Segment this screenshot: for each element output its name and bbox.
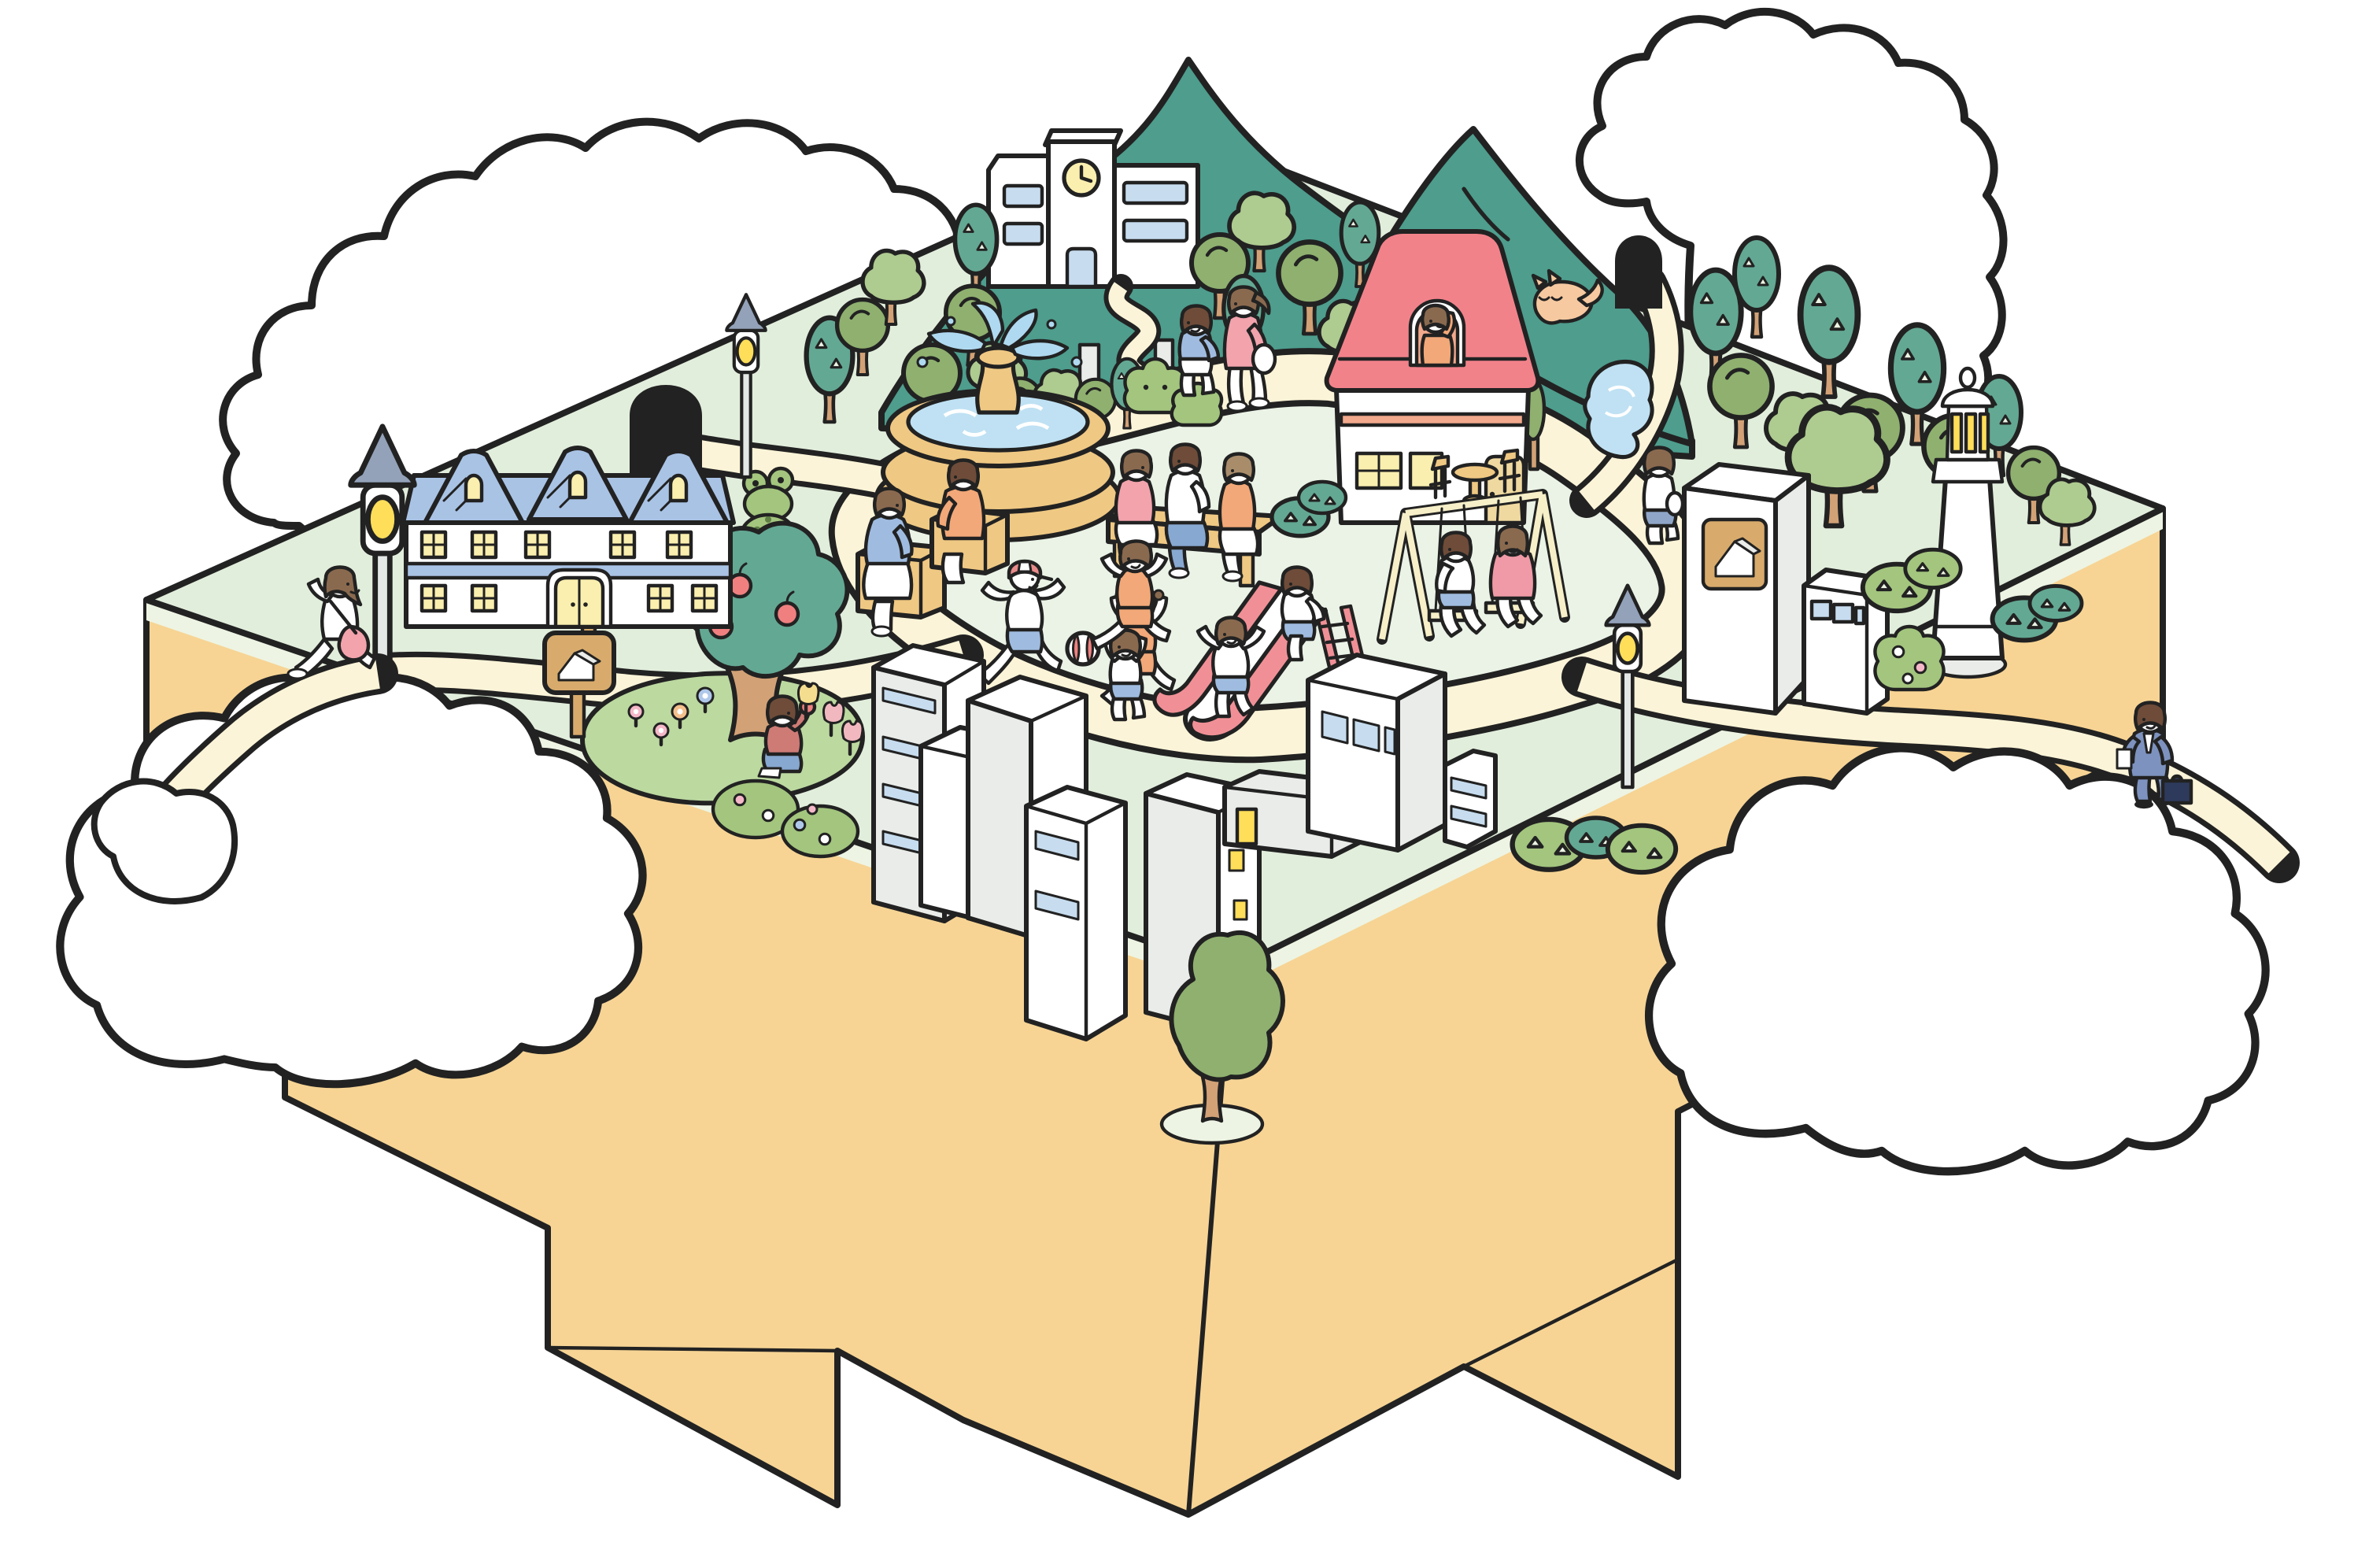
lighthouse-window [1980, 414, 1988, 452]
girl-cheering-at-slide [1105, 631, 1146, 720]
cloud-bottom-right [1649, 748, 2266, 1171]
lighthouse-window [1952, 414, 1961, 452]
school-window [1124, 220, 1187, 241]
school-window [1004, 224, 1042, 244]
tunnel-right [1615, 235, 1662, 309]
school-window [1004, 186, 1042, 206]
apartment-house [403, 448, 734, 627]
illustration-canvas [0, 0, 2380, 1546]
school-door [1067, 249, 1096, 287]
attic-window [466, 475, 482, 501]
building-white-tower [1308, 655, 1445, 850]
lighthouse-window [1966, 414, 1975, 452]
yellow-door [1237, 809, 1256, 844]
store-building [1684, 464, 1809, 713]
office-window [1856, 608, 1864, 623]
building-front-blue [1026, 787, 1125, 1039]
office-window [1812, 601, 1831, 619]
floating-town-illustration [0, 0, 2380, 1546]
building-right-sliver [1445, 751, 1495, 847]
attic-window [570, 472, 586, 497]
attic-window [671, 475, 686, 501]
office-window [1834, 605, 1853, 622]
flower-mound [582, 673, 863, 803]
girl-in-attic-window [1422, 305, 1454, 365]
school-window [1124, 183, 1187, 203]
